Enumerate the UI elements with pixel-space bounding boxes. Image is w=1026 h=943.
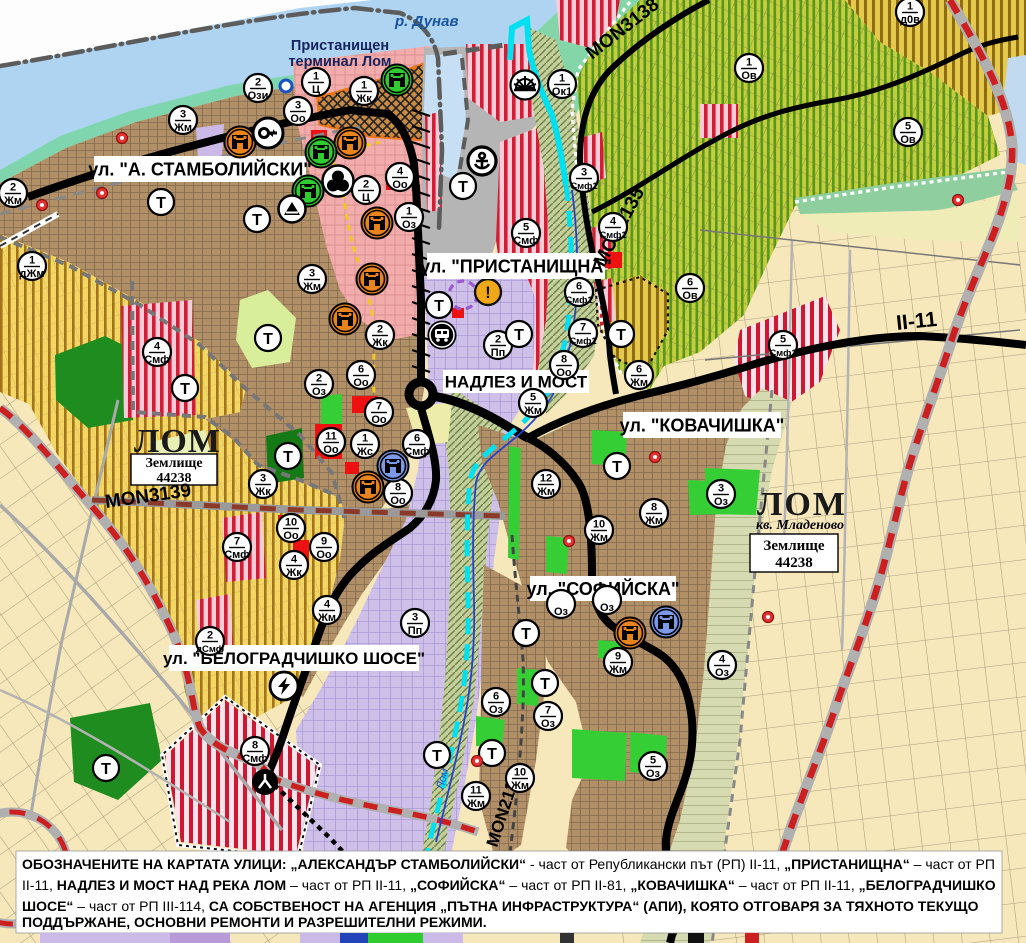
svg-text:Ок1: Ок1 <box>552 86 572 98</box>
svg-text:Ц: Ц <box>312 84 320 96</box>
svg-text:Оо: Оо <box>323 444 339 456</box>
svg-text:Т: Т <box>263 331 273 348</box>
svg-text:Т: Т <box>540 676 550 693</box>
svg-text:4: 4 <box>397 166 404 178</box>
svg-text:Оо: Оо <box>353 377 369 389</box>
svg-text:Т: Т <box>252 212 262 229</box>
svg-text:Оо: Оо <box>392 179 408 191</box>
svg-text:7: 7 <box>545 705 551 717</box>
svg-text:1: 1 <box>362 433 368 445</box>
svg-text:4: 4 <box>719 654 726 666</box>
svg-text:2: 2 <box>495 334 501 346</box>
svg-text:1: 1 <box>559 73 565 85</box>
svg-text:4: 4 <box>154 341 161 353</box>
svg-text:Смф: Смф <box>224 549 250 561</box>
svg-text:5: 5 <box>530 392 536 404</box>
svg-text:9: 9 <box>321 536 327 548</box>
svg-text:Оз: Оз <box>541 718 556 730</box>
svg-text:3: 3 <box>295 100 301 112</box>
svg-text:Оз: Оз <box>402 219 417 231</box>
svg-text:9: 9 <box>615 651 621 663</box>
svg-text:8: 8 <box>651 502 657 514</box>
svg-text:Жк: Жк <box>355 93 372 105</box>
svg-text:!: ! <box>485 283 491 302</box>
svg-text:ОБОЗНАЧЕНИТЕ НА КАРТАТА УЛИЦИ:: ОБОЗНАЧЕНИТЕ НА КАРТАТА УЛИЦИ: „АЛЕКСАНД… <box>22 855 995 872</box>
svg-text:6: 6 <box>687 277 693 289</box>
svg-text:11: 11 <box>325 431 337 443</box>
svg-text:5: 5 <box>650 755 656 767</box>
svg-text:Жм: Жм <box>523 405 542 417</box>
svg-text:5: 5 <box>523 222 529 234</box>
svg-text:Смф: Смф <box>404 446 430 458</box>
svg-text:5: 5 <box>905 121 911 133</box>
svg-text:Т: Т <box>612 459 622 476</box>
svg-text:Т: Т <box>434 298 444 315</box>
svg-text:кв. Младеново: кв. Младеново <box>756 518 844 533</box>
svg-text:Пп: Пп <box>408 625 423 637</box>
svg-text:Т: Т <box>487 746 497 763</box>
svg-text:Ов: Ов <box>682 290 698 302</box>
svg-text:Смф1: Смф1 <box>599 230 627 241</box>
svg-text:11: 11 <box>470 785 482 797</box>
svg-text:Пп: Пп <box>491 347 506 359</box>
svg-text:1: 1 <box>406 206 412 218</box>
svg-text:7: 7 <box>580 322 586 334</box>
svg-text:Оз: Оз <box>714 496 729 508</box>
svg-text:5: 5 <box>780 334 786 346</box>
svg-text:Оо: Оо <box>283 530 299 542</box>
svg-text:Т: Т <box>180 381 190 398</box>
svg-text:ул. "ПРИСТАНИЩНА": ул. "ПРИСТАНИЩНА" <box>420 256 612 276</box>
svg-text:Пристанищен: Пристанищен <box>291 38 389 54</box>
svg-text:Т: Т <box>514 327 524 344</box>
svg-text:Оо: Оо <box>556 367 572 379</box>
svg-text:дСмф: дСмф <box>196 644 224 655</box>
svg-text:Землище: Землище <box>145 456 202 471</box>
svg-text:2: 2 <box>377 324 383 336</box>
svg-text:Жм: Жм <box>644 515 663 527</box>
svg-text:Т: Т <box>616 327 626 344</box>
svg-text:Жм: Жм <box>510 780 529 792</box>
svg-text:2: 2 <box>363 179 369 191</box>
svg-text:Оо: Оо <box>290 113 306 125</box>
svg-text:Жм: Жм <box>173 122 192 134</box>
svg-text:Жм: Жм <box>317 612 336 624</box>
svg-text:терминал Лом: терминал Лом <box>288 54 391 70</box>
svg-text:Смф1: Смф1 <box>565 295 593 306</box>
svg-text:1: 1 <box>313 71 319 83</box>
svg-text:р. Дунав: р. Дунав <box>394 13 459 30</box>
svg-text:Ц: Ц <box>362 192 370 204</box>
svg-text:3: 3 <box>260 473 266 485</box>
svg-text:ПОДДЪРЖАНЕ, ОСНОВНИ РЕМОНТИ И: ПОДДЪРЖАНЕ, ОСНОВНИ РЕМОНТИ И РАЗРЕШИТЕЛ… <box>22 914 487 930</box>
svg-text:8: 8 <box>395 482 401 494</box>
svg-text:Жм: Жм <box>629 377 648 389</box>
svg-text:7: 7 <box>376 401 382 413</box>
svg-text:Жм: Жм <box>608 664 627 676</box>
svg-text:Жк: Жк <box>371 337 388 349</box>
svg-text:Смф: Смф <box>513 235 539 247</box>
svg-text:Оо: Оо <box>371 414 387 426</box>
svg-text:Жк: Жк <box>254 486 271 498</box>
svg-text:Жм: Жм <box>589 532 608 544</box>
svg-text:6: 6 <box>493 691 499 703</box>
svg-text:Жм: Жм <box>536 486 555 498</box>
svg-text:Смф: Смф <box>242 753 268 765</box>
svg-text:Оз: Оз <box>646 768 661 780</box>
svg-text:3: 3 <box>309 268 315 280</box>
svg-text:Оо: Оо <box>390 495 406 507</box>
svg-text:Оо: Оо <box>316 549 332 561</box>
svg-text:10: 10 <box>593 519 605 531</box>
svg-text:1: 1 <box>907 1 913 13</box>
svg-text:6: 6 <box>358 364 364 376</box>
svg-text:д0в: д0в <box>900 14 920 26</box>
svg-text:4: 4 <box>291 554 298 566</box>
svg-text:1: 1 <box>29 255 35 267</box>
svg-text:6: 6 <box>576 281 582 293</box>
svg-text:Т: Т <box>283 449 293 466</box>
svg-text:6: 6 <box>636 364 642 376</box>
svg-text:3: 3 <box>718 483 724 495</box>
svg-text:ул. "А. СТАМБОЛИЙСКИ": ул. "А. СТАМБОЛИЙСКИ" <box>88 158 312 179</box>
svg-text:1: 1 <box>746 57 752 69</box>
svg-text:Смф1: Смф1 <box>569 336 597 347</box>
svg-text:Оз: Оз <box>312 386 327 398</box>
svg-text:44238: 44238 <box>775 555 813 571</box>
svg-text:12: 12 <box>540 473 552 485</box>
svg-text:Оз: Оз <box>600 602 615 614</box>
svg-text:2: 2 <box>255 77 261 89</box>
svg-text:Жм: Жм <box>3 195 22 207</box>
svg-text:Смф1: Смф1 <box>570 181 598 192</box>
svg-text:Оз: Оз <box>715 667 730 679</box>
svg-text:8: 8 <box>561 354 567 366</box>
svg-text:2: 2 <box>316 373 322 385</box>
svg-text:6: 6 <box>414 433 420 445</box>
svg-text:10: 10 <box>514 767 526 779</box>
svg-text:Ов: Ов <box>741 70 757 82</box>
svg-text:Землище: Землище <box>763 538 825 554</box>
svg-text:Жм: Жм <box>302 281 321 293</box>
svg-text:Т: Т <box>521 626 531 643</box>
svg-text:2: 2 <box>207 630 213 642</box>
svg-text:4: 4 <box>610 216 617 228</box>
svg-text:ШОСЕ“ – част от РП III-114, СА: ШОСЕ“ – част от РП III-114, СА СОБСТВЕНО… <box>22 898 979 914</box>
svg-text:4: 4 <box>324 599 331 611</box>
svg-text:Т: Т <box>432 748 442 765</box>
svg-text:3: 3 <box>412 612 418 624</box>
svg-text:Т: Т <box>101 761 111 778</box>
svg-text:3: 3 <box>581 167 587 179</box>
svg-text:10: 10 <box>285 517 297 529</box>
svg-text:II-11: II-11 <box>895 308 938 335</box>
svg-text:Т: Т <box>156 195 166 212</box>
svg-text:ул. "КОВАЧИШКА": ул. "КОВАЧИШКА" <box>620 415 785 435</box>
svg-text:Оз: Оз <box>554 606 569 618</box>
svg-text:2: 2 <box>10 182 16 194</box>
svg-text:Ози: Ози <box>248 90 269 102</box>
svg-text:Жс: Жс <box>356 446 373 458</box>
svg-text:Т: Т <box>458 179 468 196</box>
svg-text:3: 3 <box>180 109 186 121</box>
svg-text:8: 8 <box>252 740 258 752</box>
svg-text:Ов: Ов <box>900 134 916 146</box>
svg-text:7: 7 <box>234 536 240 548</box>
svg-text:Жк: Жк <box>285 567 302 579</box>
svg-text:Оз: Оз <box>489 704 504 716</box>
svg-text:Смф: Смф <box>144 354 170 366</box>
svg-text:1: 1 <box>361 80 367 92</box>
svg-text:дЖм: дЖм <box>19 268 44 280</box>
svg-text:II-11, НАДЛЕЗ И МОСТ НАД РЕКА: II-11, НАДЛЕЗ И МОСТ НАД РЕКА ЛОМ – част… <box>22 876 996 893</box>
svg-text:Жм: Жм <box>466 798 485 810</box>
svg-text:Смф1: Смф1 <box>769 348 797 359</box>
